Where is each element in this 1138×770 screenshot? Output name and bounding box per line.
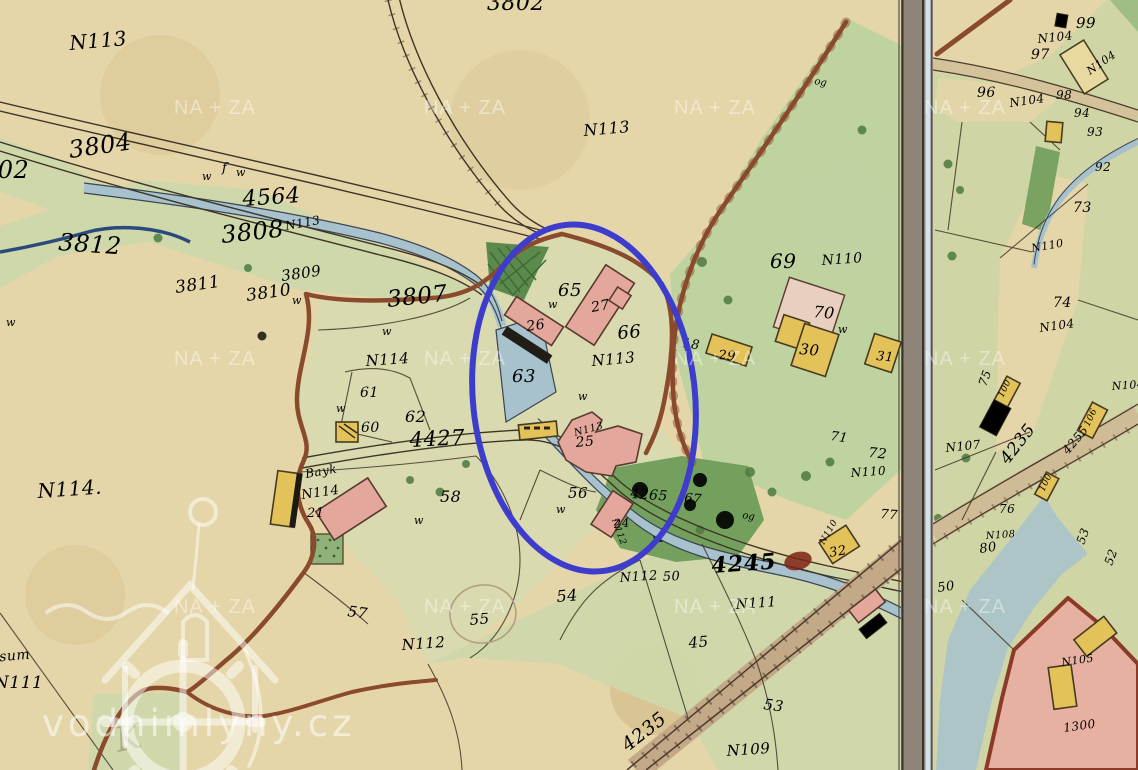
parcel-number-label: 74 [1053,295,1072,311]
meadow-symbol: og [813,76,827,89]
tile-watermark-text: NA + ZA [424,348,506,370]
meadow-symbol: w [838,323,848,336]
parcel-number-label: 76 [999,502,1015,516]
parcel-number-label: 50 [936,579,955,596]
meadow-symbol: w [548,298,558,311]
meadow-symbol: w [556,503,566,516]
tile-watermark-text: NA + ZA [924,596,1006,618]
parcel-number-label: 3812 [58,228,123,260]
district-label: 31 [876,349,895,365]
district-label: 24 [612,516,630,531]
tile-watermark-text: NA + ZA [174,348,256,370]
parcel-number-label: 57 [346,602,368,623]
tile-watermark-text: NA + ZA [424,596,506,618]
tile-watermark-text: NA + ZA [424,97,506,119]
district-label: N110 [820,250,863,269]
parcel-number-label: 63 [512,366,536,387]
district-label: N112 [618,568,658,586]
tile-watermark-text: NA + ZA [674,596,756,618]
district-label: N114. [36,475,103,504]
tile-watermark-text: NA + ZA [674,97,756,119]
district-label: 32 [828,543,848,561]
parcel-number-label: 4245 [711,548,778,578]
district-label: N104 [1110,378,1138,393]
parcel-number-label: 56 [568,484,588,502]
parcel-number-label: 99 [1076,14,1096,32]
parcel-number-label: 62 [405,407,426,426]
district-label: 25 [574,433,595,451]
parcel-number-label: 61 [360,385,379,401]
district-label: N108 [984,529,1016,542]
parcel-number-label: 80 [978,540,997,557]
parcel-number-label: 60 [361,420,380,436]
meadow-symbol: w [6,316,16,329]
district-label: 27 [589,297,611,316]
parcel-number-label: 77 [880,507,899,523]
parcel-number-label: 94 [1074,106,1090,120]
district-label: N109 [725,739,771,760]
parcel-number-label: 70 [813,302,836,323]
tile-watermark-text: NA + ZA [924,97,1006,119]
parcel-number-label: 98 [1056,88,1072,102]
parcel-number-label: 4265 [629,486,669,505]
tile-watermark-text: NA + ZA [174,97,256,119]
parcel-number-label: 4564 [241,183,302,212]
meadow-symbol: w [202,170,212,183]
parcel-number-label: 3802 [487,0,545,16]
meadow-symbol: w [236,166,246,179]
parcel-number-label: 72 [868,445,888,463]
district-label: 21 [306,506,325,521]
parcel-number-label: 53 [762,695,784,716]
parcel-number-label: 54 [556,585,579,606]
district-label: 26 [524,316,546,335]
district-label: 30 [799,340,821,360]
meadow-symbol: w [292,294,302,307]
parcel-number-label: 66 [617,321,643,344]
tile-watermark-text: NA + ZA [924,348,1006,370]
parcel-number-label: 67 [684,491,703,507]
district-label: N110 [849,464,886,481]
parcel-number-label: 50 [662,569,680,585]
meadow-symbol: w [336,402,346,415]
district-label: N113 [67,26,128,55]
parcel-number-label: 73 [1073,200,1092,216]
cadastral-map: wwwwwwwwwwwogogfK 3802302380445643812380… [0,0,1138,770]
district-label: N111 [0,673,43,693]
meadow-symbol: w [382,325,392,338]
district-label: N114 [364,349,410,370]
parcel-number-label: 65 [558,280,582,301]
map-viewport: wwwwwwwwwwwogogfK 3802302380445643812380… [0,0,1138,770]
parcel-number-label: 92 [1095,160,1111,174]
meadow-symbol: og [741,510,755,523]
parcel-number-label: 71 [829,429,848,446]
building-wood-mill [518,421,557,440]
district-label: N112 [400,633,446,654]
meadow-symbol: w [578,390,588,403]
meadow-symbol: w [414,514,424,527]
parcel-number-label: 58 [440,487,461,506]
parcel-number-label: 4427 [408,425,466,452]
parcel-number-label: 69 [770,249,796,273]
parcel-number-label: 97 [1031,47,1050,63]
parcel-number-label: 45 [687,632,710,652]
parcel-number-label: 302 [0,156,29,184]
watermark-site-text: vodnimlyny.cz [42,702,356,745]
parcel-number-label: 93 [1087,125,1103,139]
tile-watermark-text: NA + ZA [674,348,756,370]
